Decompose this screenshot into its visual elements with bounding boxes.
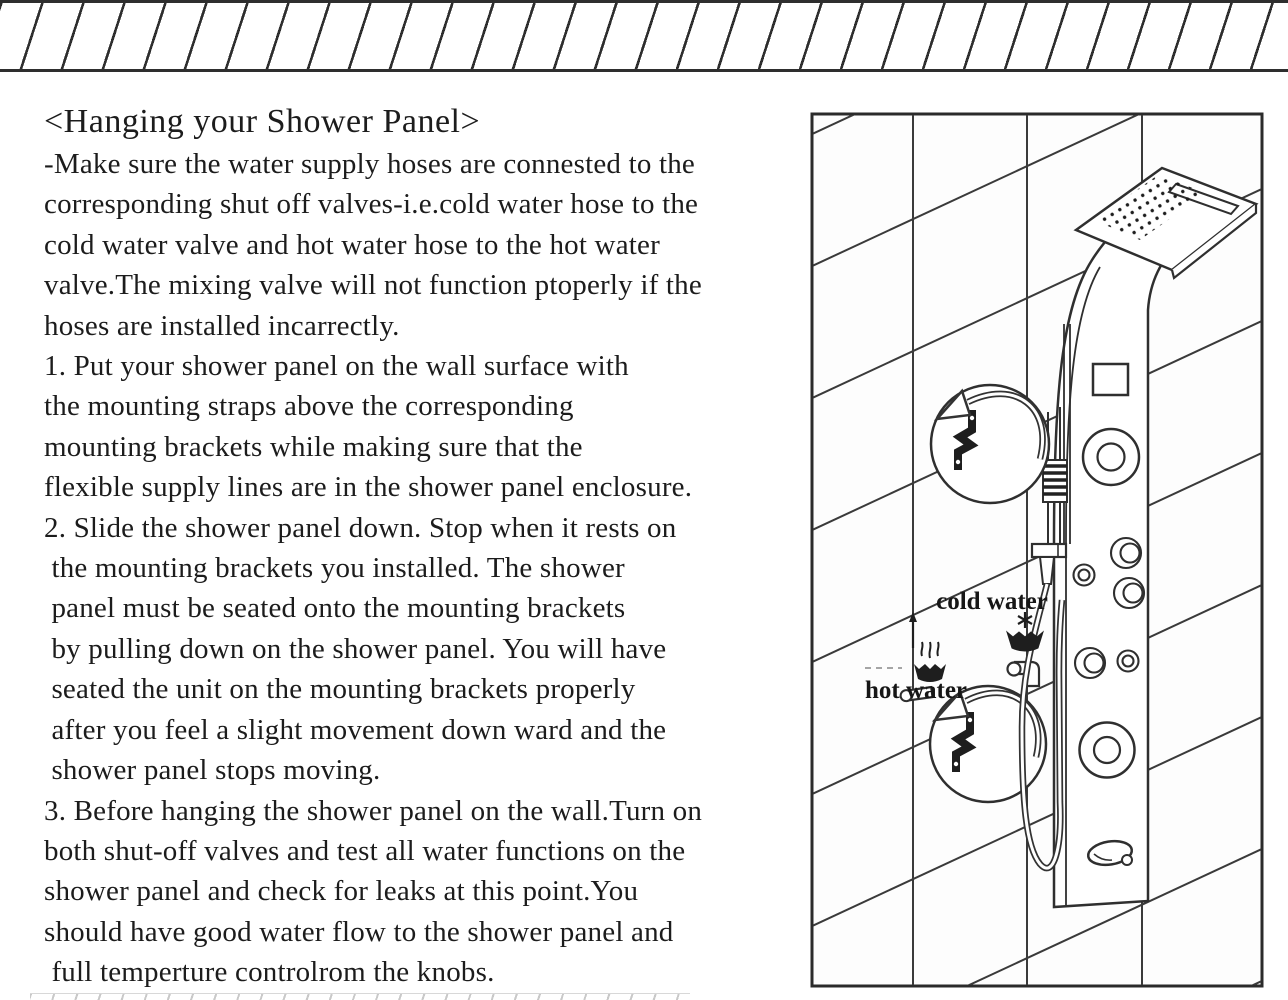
cold-water-label: cold water (936, 588, 1048, 615)
hatched-bottom-banner (30, 993, 690, 1000)
hand-shower-handle (1040, 557, 1054, 584)
hatched-top-banner (0, 0, 1288, 72)
instruction-line: cold water valve and hot water hose to t… (44, 225, 784, 265)
instruction-line: corresponding shut off valves-i.e.cold w… (44, 184, 784, 224)
instruction-line: mounting brackets while making sure that… (44, 427, 784, 467)
instruction-line: the mounting brackets you installed. The… (44, 548, 784, 588)
display-screen (1093, 364, 1128, 395)
installation-diagram: cold water hot water (810, 112, 1264, 990)
hand-shower-holder (1032, 544, 1066, 557)
instruction-line: flexible supply lines are in the shower … (44, 467, 784, 507)
instructions-panel: <Hanging your Shower Panel> -Make sure t… (44, 100, 784, 993)
instruction-line: shower panel and check for leaks at this… (44, 871, 784, 911)
mounting-bracket-inset-upper (931, 385, 1049, 503)
instruction-line: valve.The mixing valve will not function… (44, 265, 784, 305)
hot-water-label: hot water (865, 677, 967, 704)
instruction-line: 2. Slide the shower panel down. Stop whe… (44, 508, 784, 548)
instruction-line: both shut-off valves and test all water … (44, 831, 784, 871)
instructions-title: <Hanging your Shower Panel> (44, 100, 784, 144)
instruction-line: seated the unit on the mounting brackets… (44, 669, 784, 709)
instruction-line: should have good water flow to the showe… (44, 912, 784, 952)
instruction-line: panel must be seated onto the mounting b… (44, 588, 784, 628)
diverter-knob-lower (1080, 723, 1135, 778)
instruction-line: -Make sure the water supply hoses are co… (44, 144, 784, 184)
instruction-line: 3. Before hanging the shower panel on th… (44, 791, 784, 831)
instruction-line: after you feel a slight movement down wa… (44, 710, 784, 750)
instruction-line: the mounting straps above the correspond… (44, 386, 784, 426)
thermostat-knob-upper (1083, 429, 1139, 485)
instruction-line: shower panel stops moving. (44, 750, 784, 790)
instruction-line: 1. Put your shower panel on the wall sur… (44, 346, 784, 386)
instruction-line: by pulling down on the shower panel. You… (44, 629, 784, 669)
instruction-line: full temperture controlrom the knobs. (44, 952, 784, 992)
instruction-line: hoses are installed incarrectly. (44, 306, 784, 346)
